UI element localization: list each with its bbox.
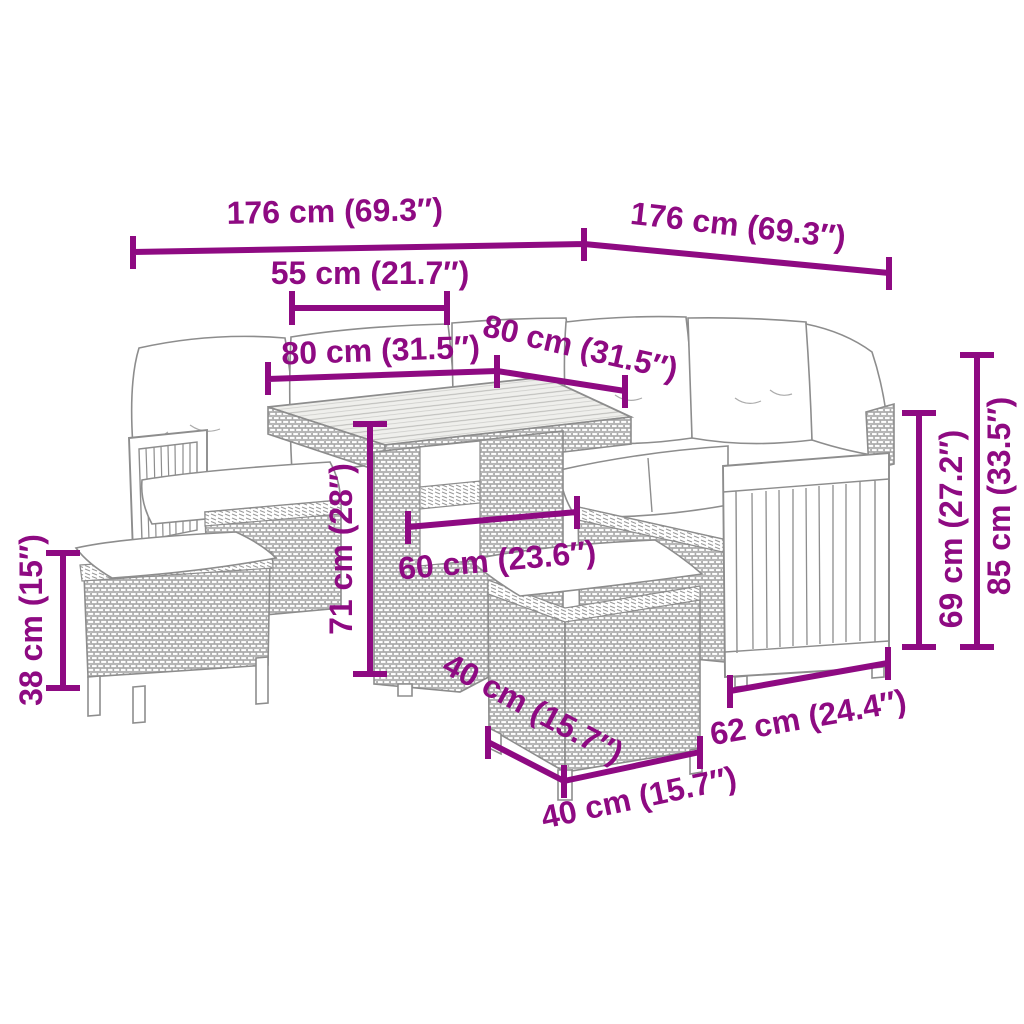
back-cushion (688, 318, 812, 444)
dimension-diagram: 176 cm (69.3″) 176 cm (69.3″) 55 cm (21.… (0, 0, 1024, 1024)
dimension-label: 80 cm (31.5″) (281, 329, 481, 372)
dimension-backrest-section-width: 55 cm (21.7″) (271, 255, 470, 325)
dimension-label: 38 cm (15″) (13, 534, 49, 706)
dimension-label: 85 cm (33.5″) (981, 397, 1017, 596)
dimension-label: 176 cm (69.3″) (629, 195, 848, 255)
dimension-stool-height: 38 cm (15″) (13, 534, 80, 706)
dimension-label: 55 cm (21.7″) (271, 255, 470, 291)
dimension-armrest-height: 69 cm (27.2″) (902, 413, 969, 647)
dimension-label: 71 cm (28″) (323, 463, 359, 635)
dimension-label: 176 cm (69.3″) (226, 191, 443, 231)
wooden-side-panel-right (723, 453, 889, 687)
diagram-canvas: 176 cm (69.3″) 176 cm (69.3″) 55 cm (21.… (0, 0, 1024, 1024)
seat-cushion (560, 446, 728, 517)
dimension-sofa-right-total-width: 176 cm (69.3″) (584, 195, 889, 290)
dimension-label: 69 cm (27.2″) (933, 430, 969, 629)
stool-left (76, 532, 276, 723)
